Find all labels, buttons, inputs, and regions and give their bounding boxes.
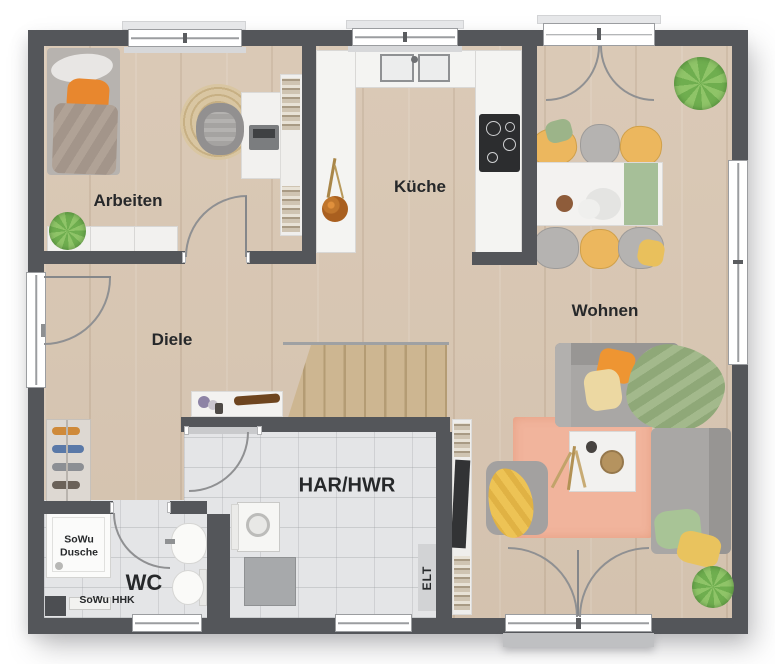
shoes-gray: [52, 463, 84, 471]
shower-label: SoWu Dusche: [60, 533, 98, 558]
sideboard-divider: [134, 227, 135, 252]
burner: [505, 122, 515, 132]
window-ledge: [124, 47, 246, 53]
door-mullion: [597, 28, 601, 40]
coffee-table-tray: [600, 450, 624, 474]
bookshelf-books-bottom: [282, 186, 300, 232]
media-shelf-books: [454, 423, 470, 457]
bed-blanket: [52, 103, 118, 175]
room-label-kueche: Küche: [394, 177, 446, 197]
media-shelf-books: [454, 556, 470, 610]
washing-machine-door-open: [231, 504, 239, 550]
laundry-box: [244, 557, 296, 606]
sofa-pillow-cream: [582, 368, 623, 413]
dining-chair-gray: [533, 227, 579, 269]
duct-shaft: [45, 596, 66, 616]
door-frame-cap: [167, 502, 171, 513]
washbasin: [171, 523, 207, 564]
coat-rack-pole: [66, 420, 68, 503]
shoes-blue: [52, 445, 84, 453]
room-label-har-hwr: HAR/HWR: [299, 475, 396, 498]
room-label-arbeiten: Arbeiten: [94, 191, 163, 211]
wall-arbeiten-diele: [44, 251, 185, 264]
entrance-door-leaf: [44, 276, 111, 278]
room-label-diele: Diele: [152, 330, 193, 350]
door-mullion: [576, 618, 581, 629]
table-flowers: [578, 199, 600, 219]
sofa-armrest: [555, 343, 571, 427]
arbeiten-door-leaf: [245, 196, 247, 257]
laptop-screen: [253, 129, 275, 138]
burner: [487, 152, 498, 163]
wall-kueche-wohnen: [522, 46, 537, 265]
corner-plant: [692, 566, 734, 608]
fruit-bowl: [322, 196, 348, 222]
shower-drain: [55, 562, 63, 570]
wall-arbeiten-diele-stub: [247, 251, 316, 264]
room-label-wc: WC: [126, 570, 163, 596]
table-bowl: [556, 195, 573, 212]
kitchen-counter-left: [316, 50, 356, 253]
terrace-slab: [503, 633, 654, 647]
sideboard-divider: [90, 227, 91, 252]
dining-chair-gray: [580, 124, 620, 166]
elt-label: ELT: [420, 566, 434, 591]
corner-plant: [674, 57, 727, 110]
table-runner: [624, 163, 658, 225]
burner: [503, 138, 516, 151]
window-mullion: [183, 33, 187, 43]
hhk-label: SoWu HHK: [79, 594, 134, 606]
faucet: [411, 56, 418, 63]
wall-wc-top-left: [44, 501, 113, 514]
coffee-table-vase: [586, 441, 597, 453]
potted-plant: [49, 212, 86, 250]
desk-chair-cushion: [204, 112, 236, 146]
wall-har-wohnen: [436, 432, 452, 618]
har-window: [335, 614, 412, 632]
staircase: [285, 345, 447, 427]
decor-vase: [215, 403, 223, 414]
door-frame-cap: [257, 426, 262, 435]
terrace-door-leaf: [577, 550, 579, 616]
wall-arbeiten-kueche: [302, 46, 316, 258]
dining-chair-yellow: [580, 229, 620, 269]
sink-basin-right: [418, 54, 450, 82]
toilet: [172, 570, 204, 605]
wall-wc-top-right: [170, 501, 207, 514]
window-mullion: [733, 260, 743, 264]
window-ledge: [348, 46, 462, 52]
wall-kueche-wohnen-stub: [472, 252, 537, 265]
stair-railing: [283, 342, 449, 345]
floor-plan: ELT Arbeiten Küche Diele Wohnen HAR/HWR …: [0, 0, 775, 664]
washing-machine-door: [246, 513, 270, 537]
burner: [486, 121, 501, 136]
wc-window: [132, 614, 202, 632]
window-mullion: [403, 32, 407, 42]
door-frame-cap: [110, 502, 114, 513]
wall-wc-har: [207, 514, 230, 618]
sink-basin-left: [380, 54, 414, 82]
bookshelf-books-top: [282, 78, 300, 130]
room-label-wohnen: Wohnen: [572, 301, 639, 321]
